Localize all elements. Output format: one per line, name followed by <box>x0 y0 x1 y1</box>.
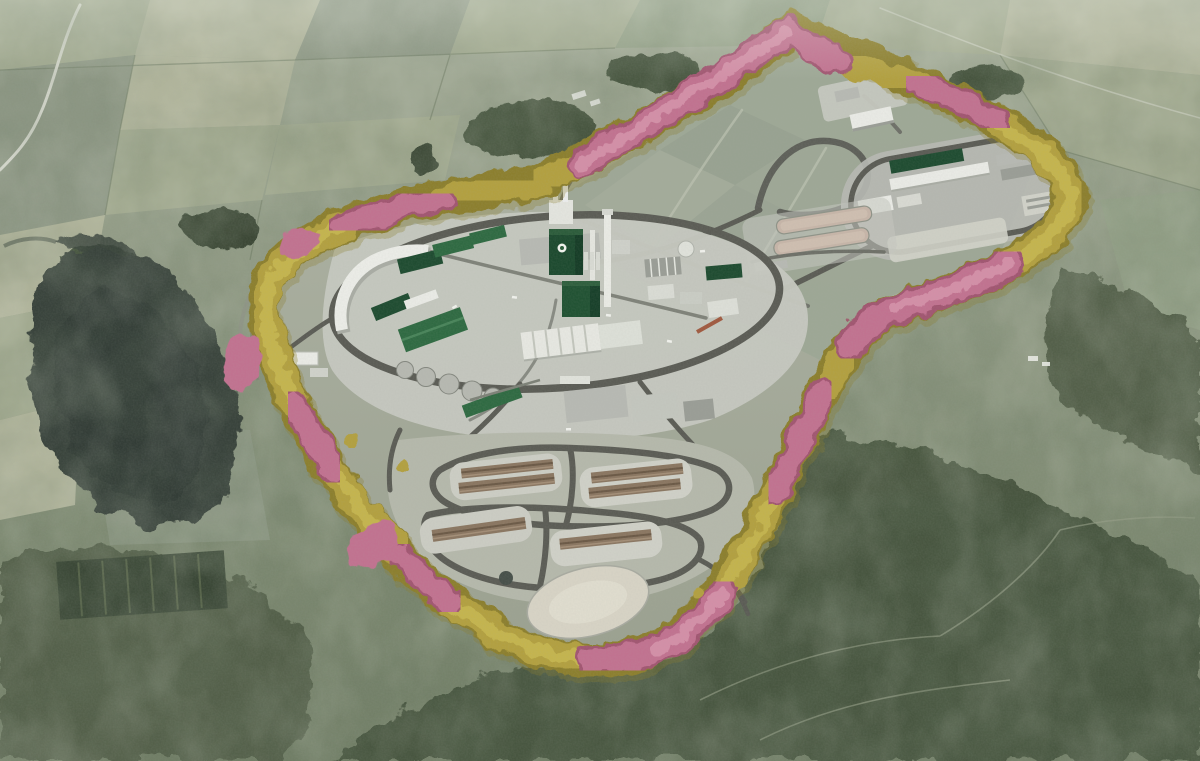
scene-svg <box>0 0 1200 761</box>
photo-grain <box>0 0 1200 761</box>
atmospheric-haze <box>0 0 1200 80</box>
aerial-render <box>0 0 1200 761</box>
